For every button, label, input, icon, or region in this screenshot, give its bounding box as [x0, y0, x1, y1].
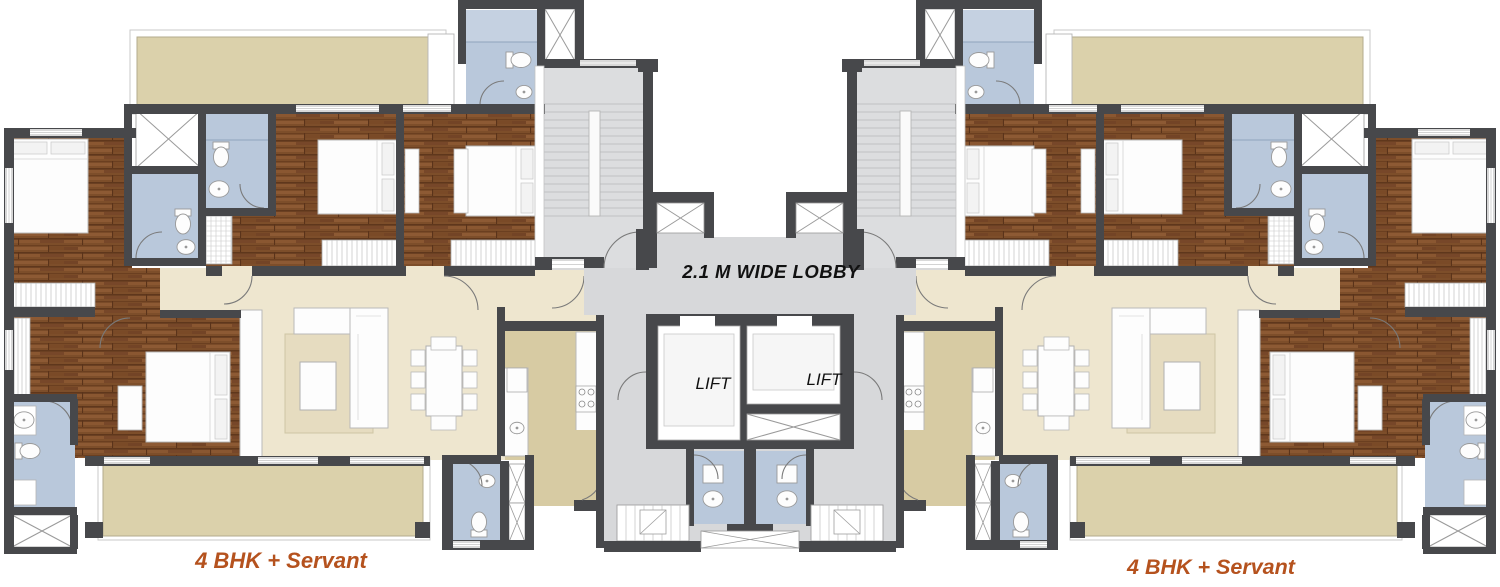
svg-text:4 BHK + Servant: 4 BHK + Servant [194, 548, 368, 573]
svg-text:LIFT: LIFT [807, 370, 844, 389]
svg-text:4 BHK + Servant: 4 BHK + Servant [1126, 555, 1296, 579]
svg-text:LIFT: LIFT [696, 374, 733, 393]
svg-text:2.1 M WIDE LOBBY: 2.1 M WIDE LOBBY [681, 261, 861, 282]
